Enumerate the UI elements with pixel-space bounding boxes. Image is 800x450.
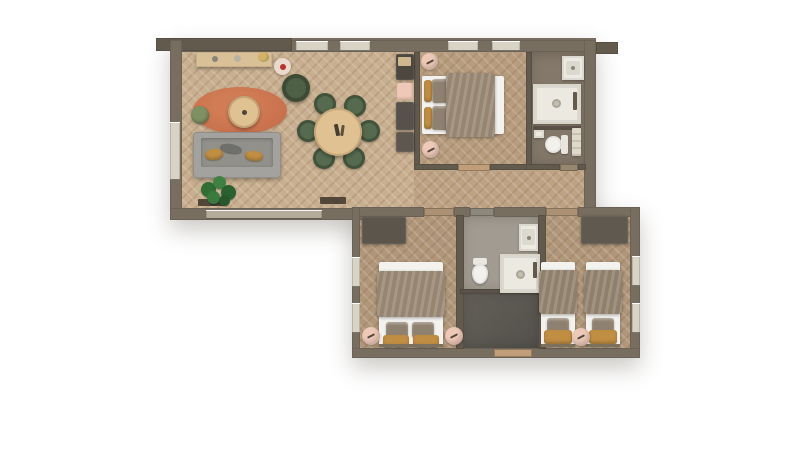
- bathroom2-toilet: [471, 258, 489, 286]
- plant-leaf: [219, 195, 230, 206]
- bedroom2-door-threshold: [424, 208, 454, 216]
- toilet-bowl: [472, 264, 488, 284]
- master-double-bed: [421, 74, 505, 136]
- wall-top-lower-a: [352, 207, 424, 217]
- window-top-4: [492, 41, 520, 51]
- headboard: [586, 344, 620, 347]
- nightstand-master-top: [421, 53, 438, 70]
- bathroom1-door-threshold: [560, 164, 578, 171]
- wall-bedroom1-hall-right: [490, 164, 528, 170]
- wall-living-bedroom1: [414, 52, 420, 166]
- bed-duvet: [584, 270, 622, 314]
- sink-drain: [571, 66, 575, 70]
- window-living-south-slider: [206, 210, 322, 219]
- accent-pillow: [544, 330, 572, 344]
- bed-duvet: [446, 73, 495, 137]
- window-bedroom2-left-2: [352, 303, 360, 333]
- toilet-tank: [561, 135, 568, 154]
- window-top-1: [296, 41, 328, 51]
- bathroom1-shower: [533, 84, 581, 124]
- armchair: [282, 74, 310, 102]
- floorplan-canvas: [0, 0, 800, 450]
- shower-drain: [552, 99, 561, 108]
- sink-drain: [527, 236, 531, 240]
- bedroom2-dresser: [362, 217, 406, 244]
- coffee-table-decor: [242, 110, 247, 115]
- nightstand-twin-center: [572, 328, 590, 346]
- wall-bathroom1-hall-right: [578, 164, 586, 170]
- nightstand-bedroom2-right: [445, 327, 463, 345]
- twin-bedroom-door-threshold: [546, 208, 578, 216]
- headboard: [541, 344, 575, 347]
- side-table-red-decor: [280, 64, 286, 70]
- console-cabinet-bottom: [396, 132, 414, 152]
- twin-wardrobe: [581, 216, 628, 244]
- tv-console: [396, 54, 414, 152]
- potted-plant: [196, 174, 236, 208]
- shower-drain: [516, 270, 525, 279]
- accent-pillow: [589, 330, 617, 344]
- entry-hall-floor: [460, 291, 542, 349]
- flower-vase: [258, 52, 269, 62]
- hallway-floor: [414, 166, 586, 210]
- console-cabinet-mid: [396, 102, 414, 130]
- wall-bedroom1-bathroom1: [526, 52, 532, 166]
- shower-fixture: [573, 92, 577, 110]
- wall-bathroom2-entry: [460, 289, 502, 294]
- pouf: [191, 106, 209, 124]
- bedroom2-double-bed: [377, 260, 445, 348]
- flush-panel: [534, 130, 544, 138]
- sideboard-decor-bowl: [234, 55, 241, 62]
- wall-right-upper: [584, 40, 596, 210]
- wall-bedroom1-hall-left: [414, 164, 458, 170]
- bedroom1-door-threshold: [458, 164, 490, 171]
- bathroom1-sink: [562, 56, 584, 80]
- bathroom1-toilet: [545, 133, 569, 157]
- bathroom2-shower: [500, 254, 540, 293]
- window-top-2: [340, 41, 370, 51]
- headboard: [379, 344, 443, 347]
- wall-bathroom1-hall-left: [526, 164, 560, 170]
- plant-leaf: [207, 191, 220, 204]
- window-left-wall: [170, 122, 180, 180]
- sofa: [193, 132, 281, 178]
- door-mat-living-right: [320, 197, 346, 204]
- window-twin-right-2: [632, 303, 640, 333]
- front-door-threshold: [494, 349, 532, 357]
- nightstand-bedroom2-left: [362, 327, 380, 345]
- bed-duvet: [539, 270, 577, 314]
- bed-duvet: [377, 271, 445, 317]
- window-top-3: [448, 41, 478, 51]
- shower-fixture: [533, 262, 537, 278]
- nightstand-master-bottom: [422, 141, 439, 158]
- bathroom2-sink: [519, 224, 538, 251]
- console-bench-cushion: [397, 83, 413, 100]
- sideboard-decor-vase: [212, 56, 218, 62]
- console-shelf: [398, 57, 411, 66]
- window-bedroom2-left-1: [352, 257, 360, 287]
- wall-top-right-extension: [596, 42, 618, 54]
- window-twin-right-1: [632, 256, 640, 286]
- bathroom2-door-threshold: [470, 208, 494, 216]
- towel-rail: [572, 128, 581, 156]
- toilet-bowl: [545, 136, 562, 153]
